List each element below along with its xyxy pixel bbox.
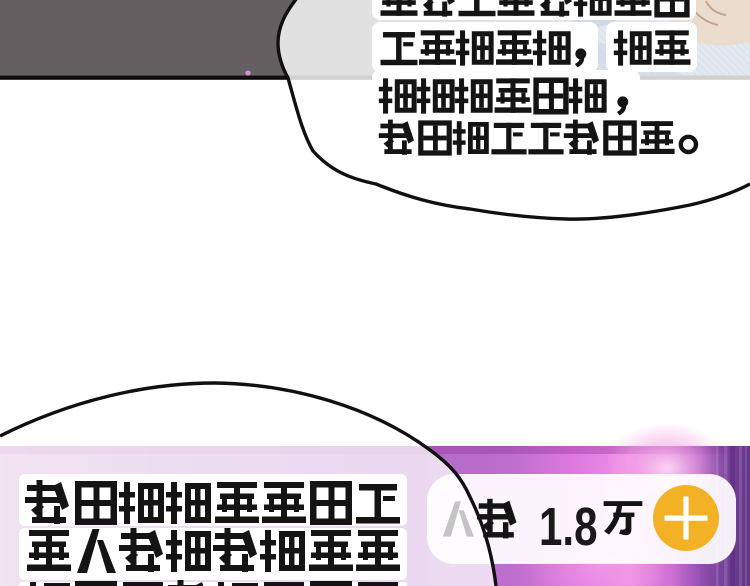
svg-text:1.8: 1.8	[539, 497, 598, 557]
